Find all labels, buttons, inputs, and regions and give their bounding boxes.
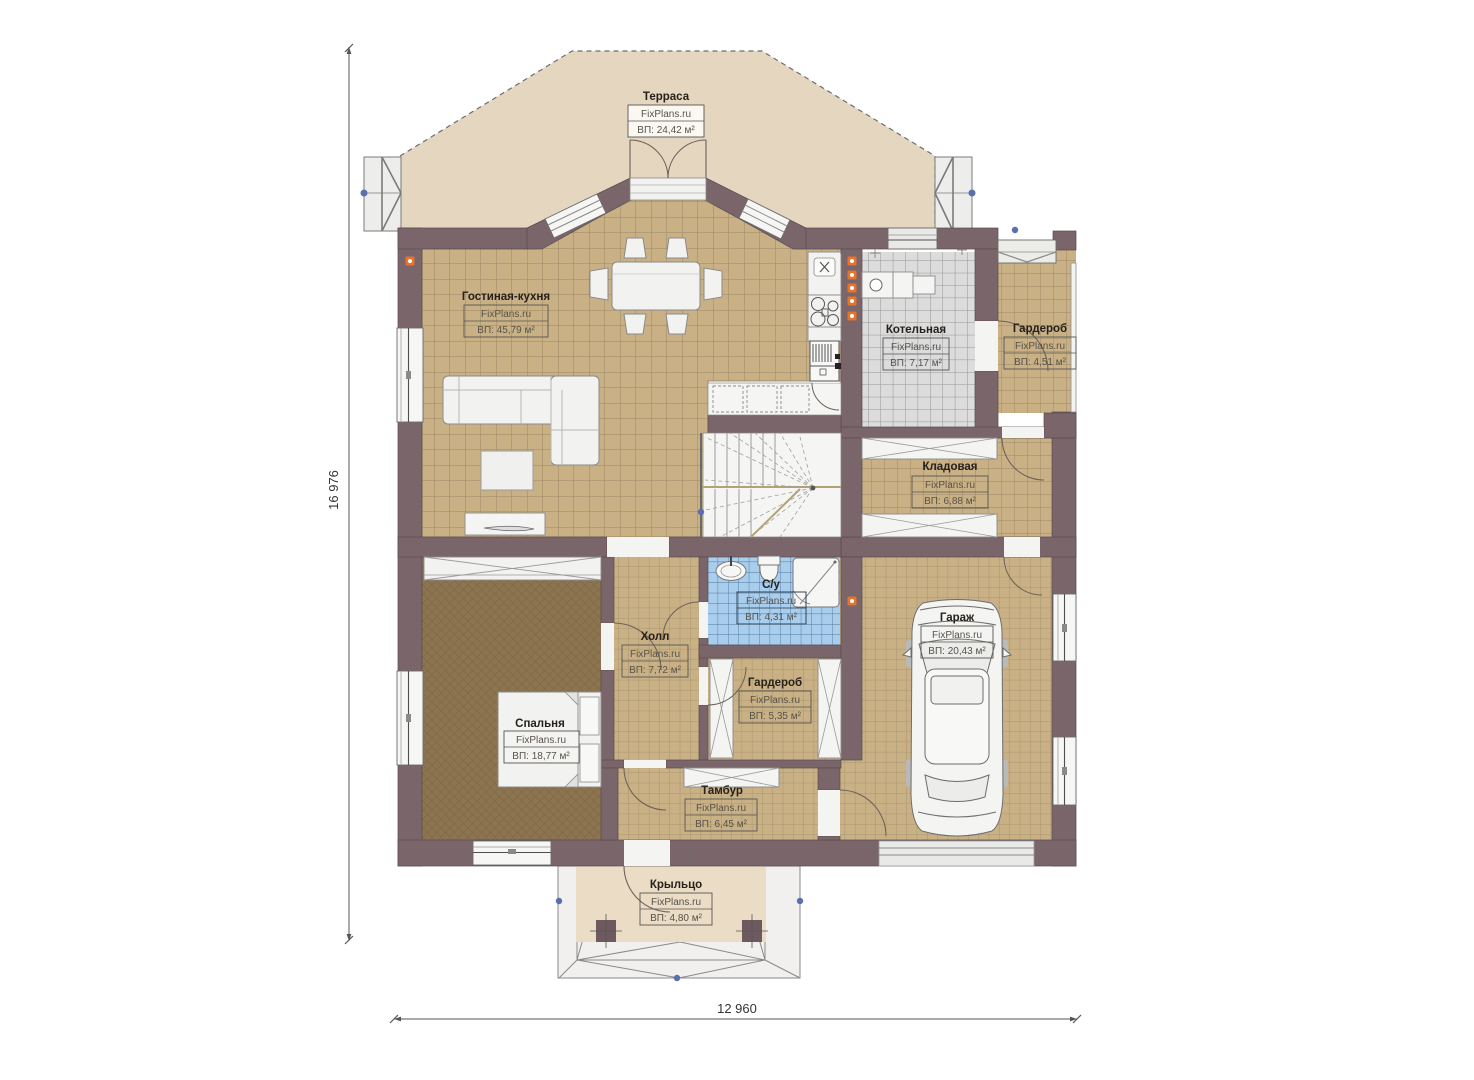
svg-text:ВП: 20,43 м²: ВП: 20,43 м²: [928, 646, 986, 657]
svg-text:Крыльцо: Крыльцо: [650, 879, 702, 891]
svg-text:Гардероб: Гардероб: [1013, 323, 1067, 335]
svg-text:FixPlans.ru: FixPlans.ru: [696, 803, 746, 814]
svg-text:ВП: 6,45 м²: ВП: 6,45 м²: [695, 819, 748, 830]
svg-text:Гардероб: Гардероб: [748, 677, 802, 689]
svg-text:FixPlans.ru: FixPlans.ru: [641, 109, 691, 120]
svg-text:Тамбур: Тамбур: [701, 785, 743, 797]
svg-text:ВП: 7,72 м²: ВП: 7,72 м²: [629, 665, 682, 676]
svg-text:FixPlans.ru: FixPlans.ru: [516, 735, 566, 746]
svg-text:FixPlans.ru: FixPlans.ru: [891, 342, 941, 353]
svg-text:ВП: 4,80 м²: ВП: 4,80 м²: [650, 913, 703, 924]
svg-text:FixPlans.ru: FixPlans.ru: [746, 596, 796, 607]
svg-text:FixPlans.ru: FixPlans.ru: [651, 897, 701, 908]
svg-text:Гостиная-кухня: Гостиная-кухня: [462, 291, 550, 303]
svg-text:12 960: 12 960: [717, 1001, 757, 1016]
svg-text:ВП: 6,88 м²: ВП: 6,88 м²: [924, 496, 977, 507]
svg-text:ВП: 18,77 м²: ВП: 18,77 м²: [512, 751, 570, 762]
svg-text:ВП: 7,17 м²: ВП: 7,17 м²: [890, 358, 943, 369]
svg-text:ВП: 24,42 м²: ВП: 24,42 м²: [637, 125, 695, 136]
svg-text:Гараж: Гараж: [940, 612, 975, 624]
svg-text:FixPlans.ru: FixPlans.ru: [481, 309, 531, 320]
svg-text:ВП: 4,51 м²: ВП: 4,51 м²: [1014, 357, 1067, 368]
svg-text:FixPlans.ru: FixPlans.ru: [750, 695, 800, 706]
svg-text:FixPlans.ru: FixPlans.ru: [932, 630, 982, 641]
svg-text:ВП: 5,35 м²: ВП: 5,35 м²: [749, 711, 802, 722]
svg-text:Терраса: Терраса: [643, 91, 690, 103]
svg-text:ВП: 45,79 м²: ВП: 45,79 м²: [477, 325, 535, 336]
svg-text:Спальня: Спальня: [515, 718, 565, 730]
svg-text:С/у: С/у: [762, 579, 781, 591]
svg-text:FixPlans.ru: FixPlans.ru: [1015, 341, 1065, 352]
svg-text:Котельная: Котельная: [886, 324, 946, 336]
svg-text:FixPlans.ru: FixPlans.ru: [925, 480, 975, 491]
svg-text:ВП: 4,31 м²: ВП: 4,31 м²: [745, 612, 798, 623]
svg-text:Холл: Холл: [641, 631, 670, 643]
svg-text:FixPlans.ru: FixPlans.ru: [630, 649, 680, 660]
svg-text:Кладовая: Кладовая: [922, 461, 977, 473]
svg-text:16 976: 16 976: [326, 470, 341, 510]
